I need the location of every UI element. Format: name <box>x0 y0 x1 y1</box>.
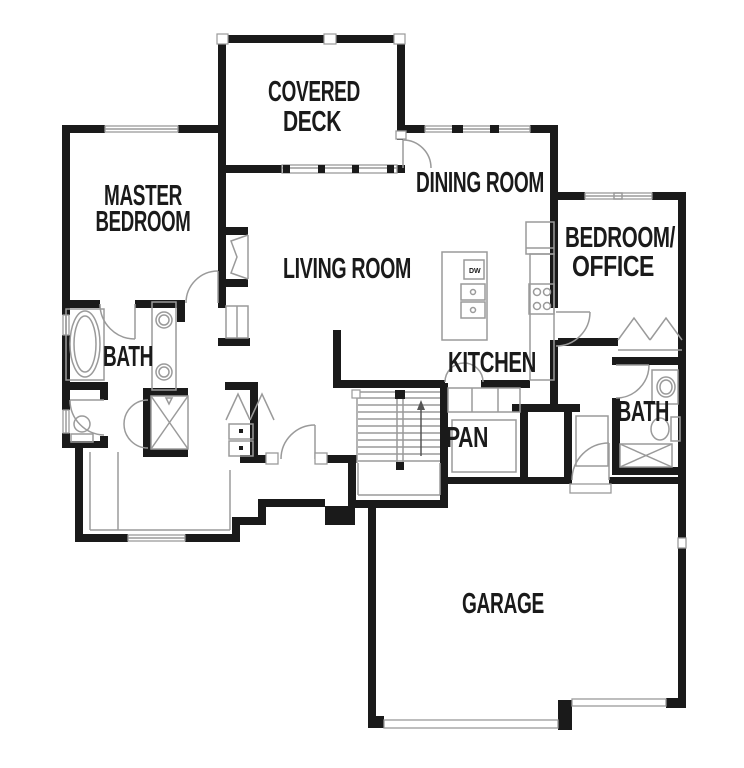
mud-bench <box>576 416 608 466</box>
window <box>63 410 69 433</box>
garage-door-left <box>384 720 558 728</box>
room-label-hall-bath: BATH <box>617 396 669 428</box>
window <box>105 126 178 132</box>
dishwasher-label: DW <box>469 268 481 275</box>
room-label-covered-deck-1: COVERED <box>268 76 360 108</box>
fireplace <box>231 235 248 279</box>
window <box>425 125 530 133</box>
kitchen-counter-south <box>448 388 520 412</box>
garage-door-right <box>572 699 666 706</box>
walls <box>62 35 686 730</box>
wall-notch <box>678 538 686 548</box>
stairs <box>352 390 440 495</box>
room-label-pantry: PAN <box>446 422 488 454</box>
shower-master <box>151 396 188 449</box>
door-hall-bath <box>616 365 649 398</box>
garage-doors <box>384 699 666 728</box>
room-label-garage: GARAGE <box>462 588 544 620</box>
closet-shelves <box>90 452 230 530</box>
bathtub <box>66 309 104 380</box>
door-master <box>186 271 218 303</box>
door-deck-dining <box>396 131 431 168</box>
washer-dryer <box>229 424 253 456</box>
sliding-door <box>282 165 397 173</box>
window <box>585 193 652 199</box>
deck-post <box>394 34 405 44</box>
floor-plan-page: DW COVERED DECK MASTER BEDR <box>0 0 744 768</box>
double-vanity <box>152 302 176 390</box>
room-label-covered-deck-2: DECK <box>283 106 341 138</box>
room-label-bedroom-office-2: OFFICE <box>572 251 654 283</box>
floor-plan-canvas: DW COVERED DECK MASTER BEDR <box>0 0 744 768</box>
window <box>128 535 185 541</box>
linen-closet <box>226 306 248 338</box>
room-label-bedroom-office-1: BEDROOM/ <box>565 222 675 254</box>
toilet-master <box>71 416 93 442</box>
bifold-door-bedroom-closet <box>618 318 682 350</box>
room-label-master-bedroom-2: BEDROOM <box>96 206 191 238</box>
windows <box>63 34 686 548</box>
room-label-dining-room: DINING ROOM <box>416 167 544 199</box>
dishwasher: DW <box>464 260 484 279</box>
double-sink <box>461 284 485 318</box>
deck-post <box>324 34 336 44</box>
room-label-living-room: LIVING ROOM <box>283 253 411 285</box>
shower-hall-bath <box>620 444 672 467</box>
kitchen-island: DW <box>442 252 487 340</box>
room-label-master-bath: BATH <box>103 341 153 373</box>
door-master-bath <box>100 304 135 339</box>
refrigerator <box>526 222 554 254</box>
deck-post <box>217 34 228 44</box>
room-label-kitchen: KITCHEN <box>448 347 536 379</box>
door-hall-closet-wing <box>266 425 327 464</box>
